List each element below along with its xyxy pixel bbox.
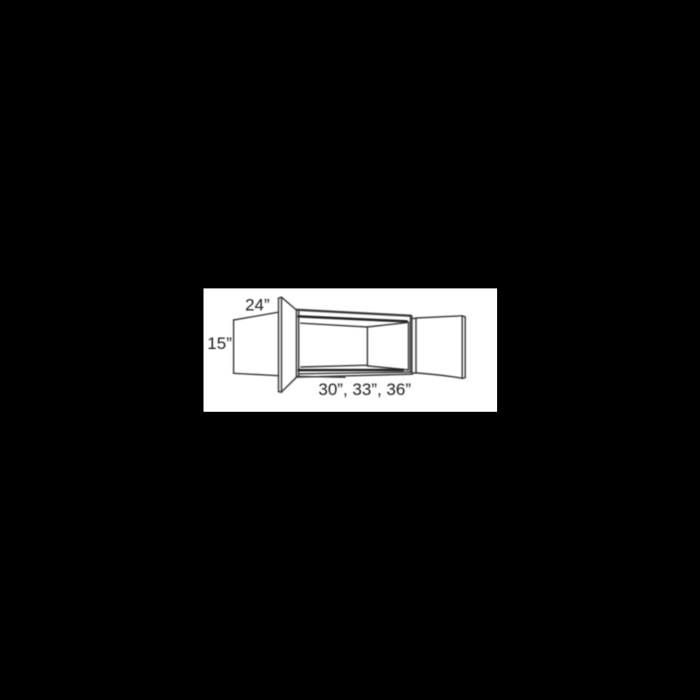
- svg-text:24”: 24”: [245, 295, 270, 314]
- svg-text:30”, 33”, 36”: 30”, 33”, 36”: [318, 380, 411, 399]
- svg-text:15”: 15”: [207, 334, 232, 353]
